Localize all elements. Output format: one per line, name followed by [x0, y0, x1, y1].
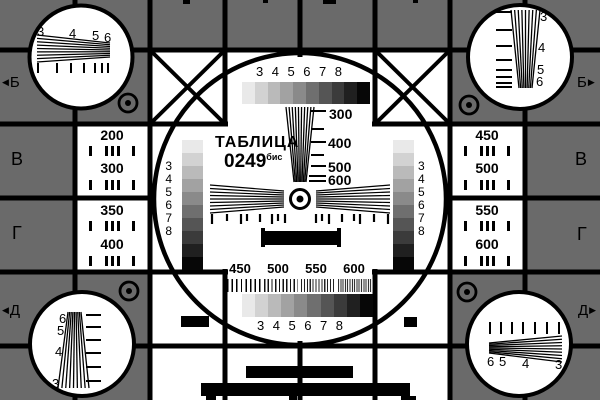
tl-wedge-label: 3	[37, 25, 44, 38]
left-panel-ticks	[89, 180, 135, 190]
edge-glyph-remnant	[413, 0, 418, 3]
left-margin-d: ◀Д	[2, 303, 20, 318]
burst-labels: 450500550600	[221, 262, 373, 275]
left-panel-350: 350	[77, 203, 147, 217]
arrow-right-icon: ▶	[589, 306, 596, 315]
card-title: ТАБЛИЦА	[215, 135, 299, 151]
card-number-suffix: бис	[266, 152, 282, 162]
grayscale-labels-top: 345678	[256, 65, 342, 78]
right-panel-500: 500	[452, 161, 522, 175]
right-panel-ticks	[464, 256, 510, 266]
card-number-text: 0249	[224, 151, 266, 172]
right-black-patch	[404, 317, 417, 327]
right-margin-v: В	[575, 150, 587, 168]
edge-glyph-remnant	[323, 0, 336, 4]
edge-glyph-remnant	[401, 396, 416, 400]
grayscale-wedge-top	[242, 82, 370, 104]
right-panel-450: 450	[452, 128, 522, 142]
arrow-left-icon: ◀	[2, 78, 9, 87]
test-card-artwork	[0, 0, 600, 400]
right-panel-600: 600	[452, 237, 522, 251]
edge-glyph-remnant	[263, 0, 268, 3]
left-panel-300: 300	[77, 161, 147, 175]
grayscale-strip-right	[393, 140, 414, 270]
left-margin-b: ◀Б	[2, 75, 20, 90]
arrow-right-icon: ▶	[588, 78, 595, 87]
tl-wedge-label: 5	[92, 29, 99, 42]
left-panel-200: 200	[77, 128, 147, 142]
right-margin-g: Г	[577, 225, 587, 243]
center-bar-right-cap	[337, 228, 341, 247]
left-panel-ticks	[89, 221, 135, 231]
edge-glyph-remnant	[289, 396, 297, 400]
right-margin-b: Б▶	[577, 75, 595, 90]
br-wedge-label: 6	[487, 355, 494, 368]
left-margin-v: В	[11, 150, 23, 168]
left-black-patch	[181, 316, 209, 327]
burst-550	[301, 279, 335, 292]
tl-wedge-label: 6	[104, 31, 111, 44]
grayscale-wedge-bottom	[242, 294, 373, 317]
grayscale-labels-bottom: 345678	[257, 319, 343, 332]
right-panel-550: 550	[452, 203, 522, 217]
bottom-short-bar	[246, 366, 353, 378]
br-wedge-label: 4	[522, 357, 529, 370]
right-panel-ticks	[464, 221, 510, 231]
left-margin-g: Г	[12, 224, 22, 242]
card-number: 0249бис	[224, 152, 282, 171]
strip-labels-right: 345678	[418, 160, 432, 238]
br-wedge-label: 5	[499, 355, 506, 368]
bl-wedge-label: 5	[57, 324, 64, 337]
br-wedge-label: 3	[555, 358, 562, 371]
freq-label-600: 600	[328, 173, 351, 187]
bl-wedge-label: 4	[55, 345, 62, 358]
left-panel-ticks	[89, 146, 135, 156]
tr-wedge-label: 6	[536, 75, 543, 88]
right-panel-ticks	[464, 180, 510, 190]
arrow-left-icon: ◀	[2, 306, 9, 315]
tl-wedge-label: 4	[69, 27, 76, 40]
tr-wedge-label: 4	[538, 41, 545, 54]
bl-wedge-label: 3	[52, 377, 59, 390]
center-bullseye-icon	[291, 190, 310, 209]
burst-450	[227, 279, 261, 292]
freq-label-400: 400	[328, 136, 351, 150]
test-card: ТАБЛИЦА 0249бис 300 400 500 600 345678 3…	[0, 0, 600, 400]
edge-glyph-remnant	[183, 0, 190, 4]
left-panel-ticks	[89, 256, 135, 266]
burst-600	[338, 279, 373, 292]
burst-500	[264, 279, 298, 292]
right-margin-d: Д▶	[578, 303, 596, 318]
edge-glyph-remnant	[206, 396, 216, 400]
center-reference-bar	[263, 231, 338, 245]
bottom-long-bar	[201, 383, 410, 396]
strip-labels-left: 345678	[158, 160, 172, 238]
freq-label-300: 300	[329, 107, 352, 121]
grayscale-strip-left	[182, 140, 203, 270]
right-panel-ticks	[464, 146, 510, 156]
left-panel-400: 400	[77, 237, 147, 251]
tr-wedge-label: 3	[540, 10, 547, 23]
